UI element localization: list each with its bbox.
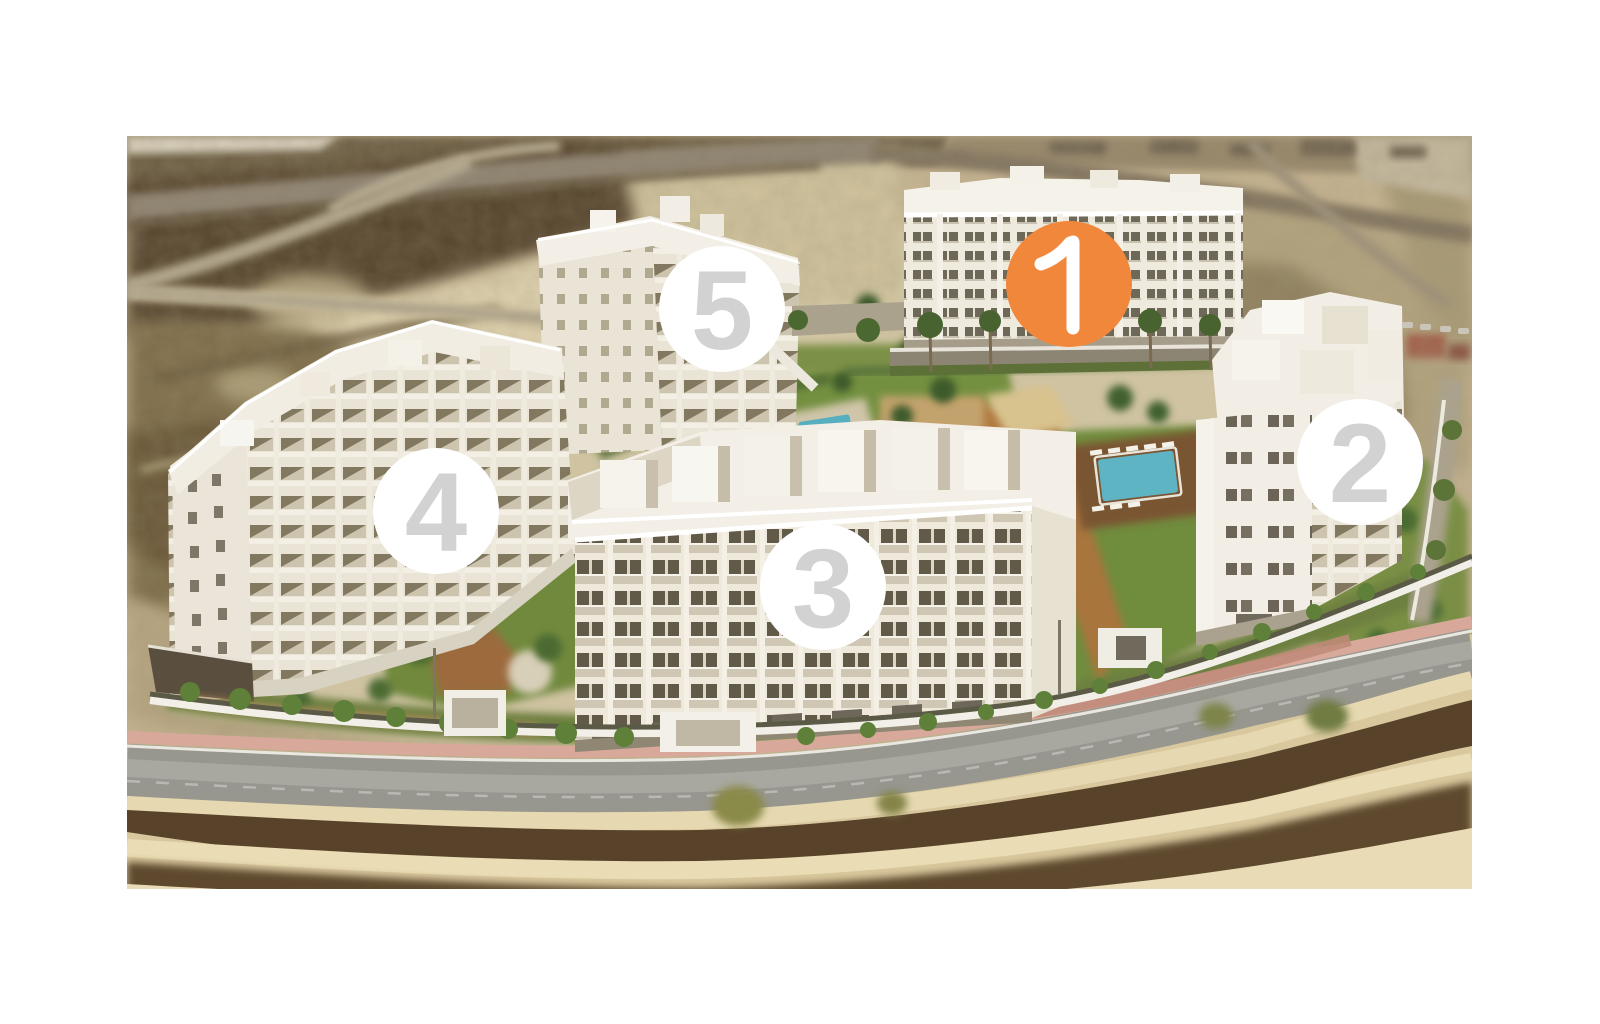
svg-text:4: 4 (405, 450, 467, 575)
svg-text:2: 2 (1329, 401, 1391, 526)
svg-text:5: 5 (691, 248, 753, 373)
svg-text:3: 3 (792, 526, 854, 651)
